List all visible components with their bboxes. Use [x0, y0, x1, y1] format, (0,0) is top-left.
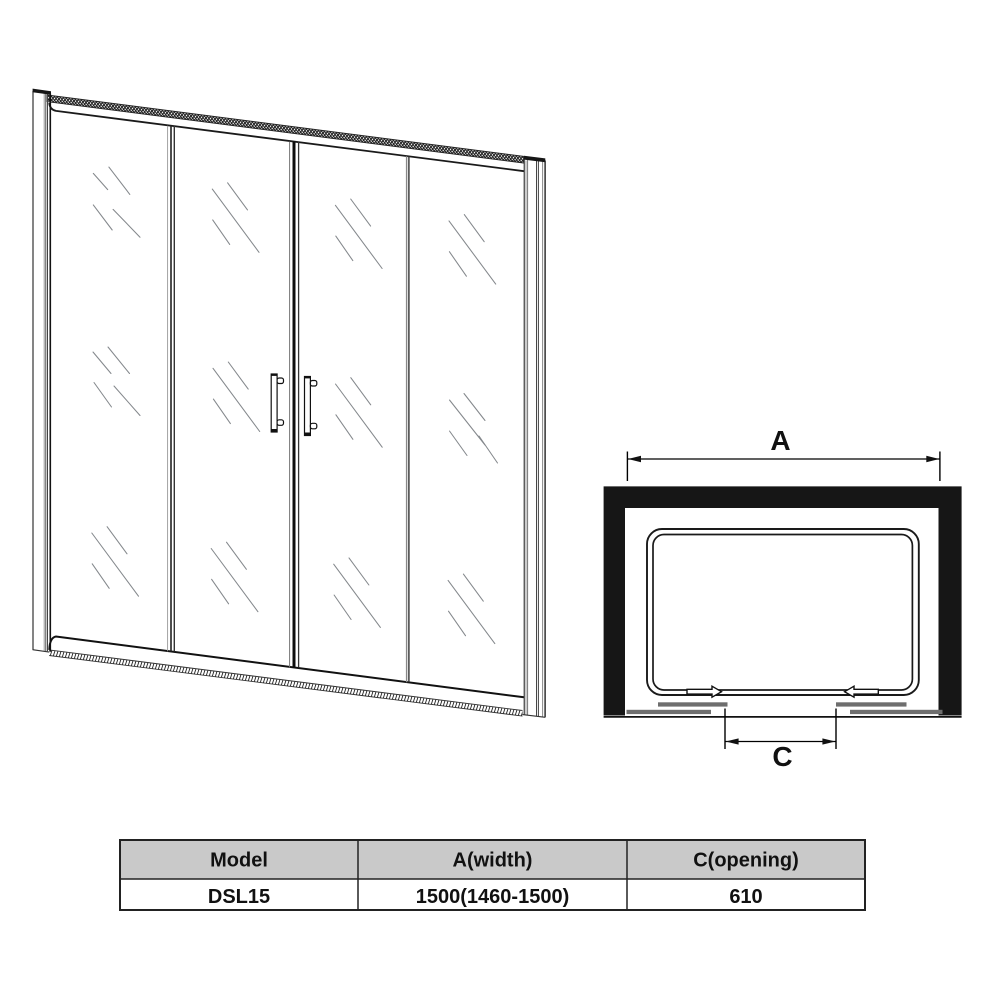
svg-text:A(width): A(width) [453, 850, 533, 872]
svg-text:DSL15: DSL15 [208, 886, 270, 908]
svg-text:C: C [772, 741, 792, 772]
svg-text:A: A [770, 425, 790, 456]
svg-text:C(opening): C(opening) [693, 850, 799, 872]
svg-text:Model: Model [210, 850, 268, 872]
svg-text:1500(1460-1500): 1500(1460-1500) [416, 886, 569, 908]
svg-text:610: 610 [729, 886, 762, 908]
